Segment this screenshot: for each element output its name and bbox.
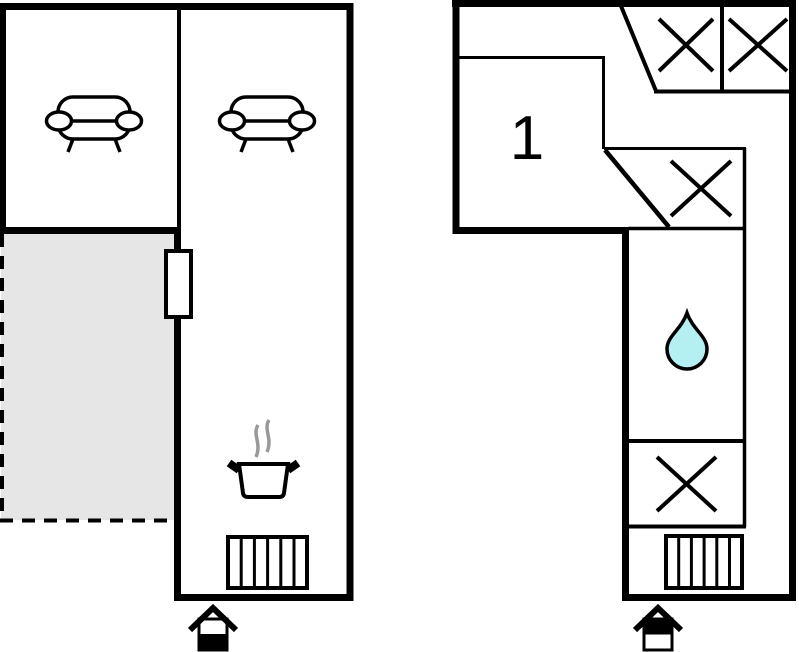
stove-pot-icon — [229, 420, 298, 497]
xbox-mid-diagonal-edge — [605, 150, 669, 227]
terrace-area — [1, 234, 174, 520]
sofa-icon — [47, 97, 142, 152]
sofa-leg — [288, 139, 293, 152]
steam-line — [267, 420, 269, 452]
room-number-label: 1 — [510, 104, 544, 173]
xbox-slant-edge — [621, 6, 656, 91]
floor-plan-left — [0, 3, 354, 650]
steam-line — [256, 425, 258, 457]
sofa-armrest — [290, 112, 315, 130]
stairs-icon — [666, 536, 742, 588]
x-box-icon — [657, 457, 716, 511]
entrance-band — [201, 634, 226, 649]
x-box-icon — [671, 161, 731, 216]
stairs-icon — [228, 537, 307, 588]
sofa-armrest — [117, 112, 142, 130]
x-box-icon — [659, 19, 713, 71]
floor-plan-page: 1 — [0, 0, 799, 652]
x-box-icon — [729, 19, 787, 71]
sofa-armrest — [220, 112, 245, 130]
entrance-band — [646, 621, 671, 635]
sofa-leg — [115, 139, 120, 152]
sofa-leg — [68, 139, 73, 152]
sofa-armrest — [47, 112, 72, 130]
entrance-house-icon — [190, 608, 236, 650]
pot-body — [239, 464, 288, 497]
sofa-icon — [220, 97, 315, 152]
door-icon — [166, 251, 191, 317]
sofa-leg — [241, 139, 246, 152]
entrance-house-icon — [635, 608, 681, 650]
floor-plan-right: 1 — [452, 1, 796, 650]
water-drop-icon — [667, 313, 707, 369]
floor-plan-drawing: 1 — [0, 0, 799, 652]
